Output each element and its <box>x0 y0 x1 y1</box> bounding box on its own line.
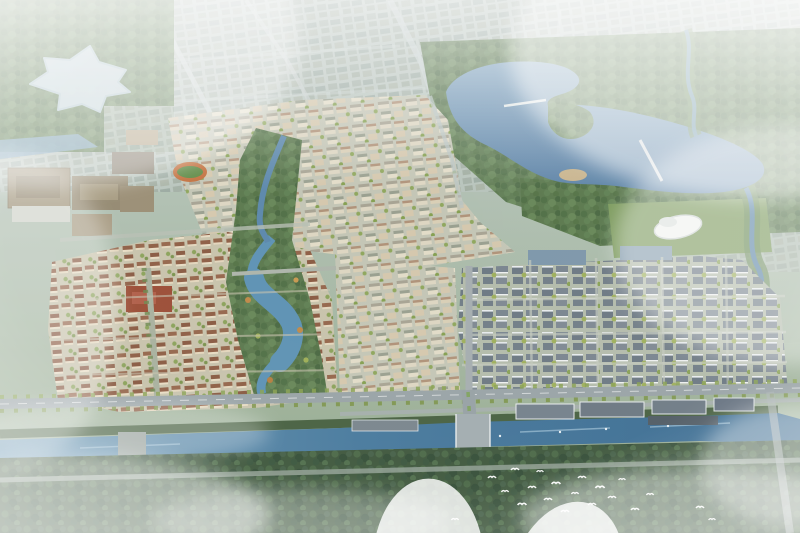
city-aerial-rendering: Bai du 百科 <box>0 0 800 533</box>
scene-svg <box>0 0 800 533</box>
baidu-paw-icon: du <box>85 470 800 533</box>
mist-overlay <box>0 0 800 533</box>
baidu-baike-watermark: Bai du 百科 <box>33 470 800 533</box>
